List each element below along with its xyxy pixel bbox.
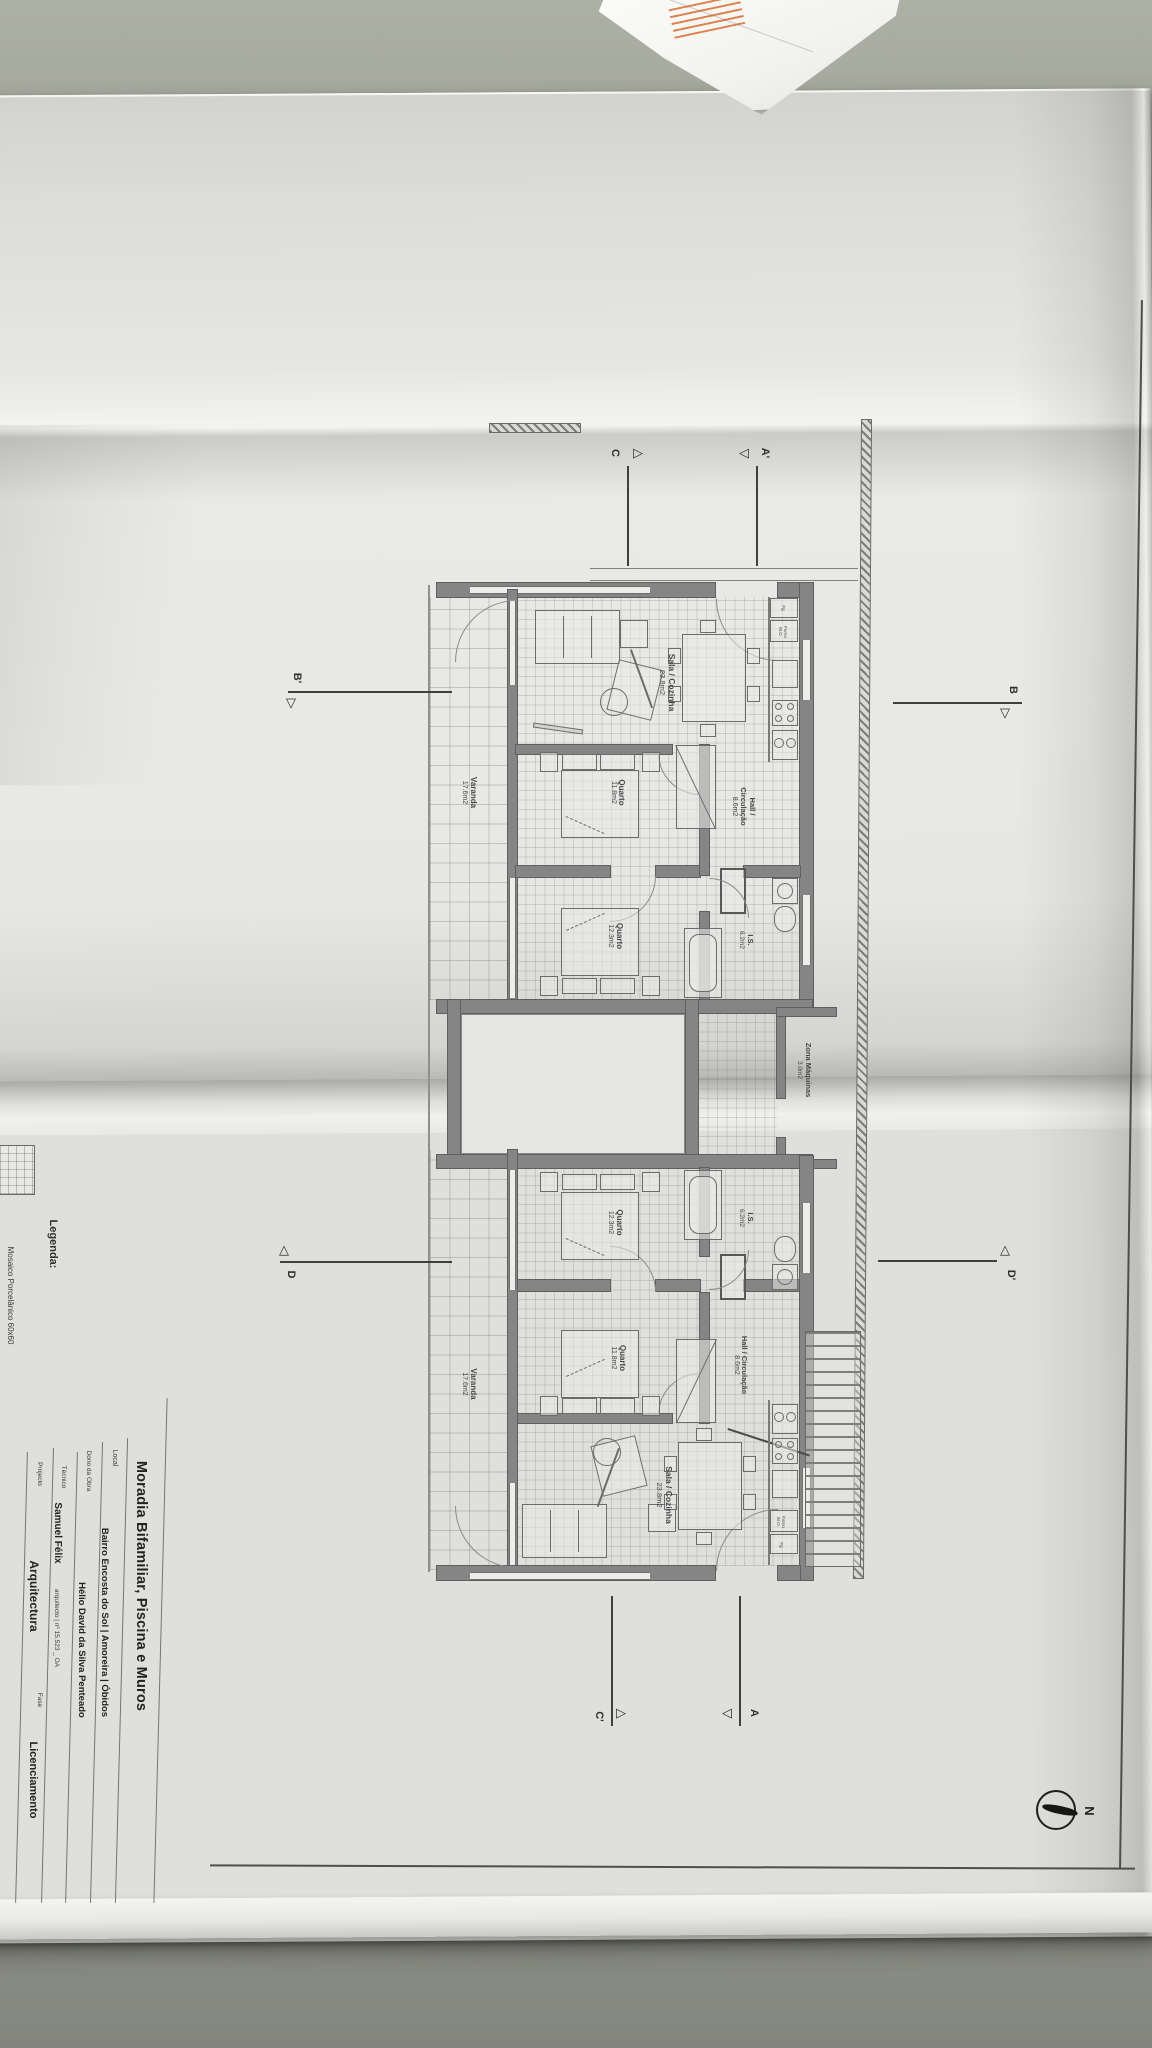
sofa xyxy=(535,610,620,664)
titleblock-owner-label: Dono da Obra xyxy=(84,1450,93,1492)
bathtub-inner xyxy=(689,934,717,992)
site-boundary-wall xyxy=(490,424,580,432)
chair xyxy=(747,686,760,702)
section-line-a xyxy=(739,1596,741,1726)
label-text: Mosaico Porcelânico 60x60 xyxy=(5,1247,14,1345)
room-area: 6.2m2 xyxy=(738,931,745,949)
pillow xyxy=(600,1398,635,1414)
wall xyxy=(437,1000,812,1013)
chair xyxy=(747,648,760,664)
room-area: 6.2m2 xyxy=(738,1209,745,1227)
section-marker-d-prime: D' xyxy=(1002,1264,1020,1286)
wall xyxy=(437,1155,812,1168)
chair xyxy=(696,1532,712,1545)
room-area: 17.6m2 xyxy=(460,1372,468,1395)
room-name: Quarto xyxy=(617,779,626,805)
room-name: Varanda xyxy=(468,777,477,808)
label-text: Arquitectura xyxy=(27,1560,41,1631)
room-label-varanda-lower: Varanda 17.6m2 xyxy=(458,1358,480,1410)
label-text: Bairro Encosta do Sol | Amoreira | Óbido… xyxy=(99,1528,110,1717)
room-label-sala-lower: Sala / Cozinha 23.8m2 xyxy=(652,1455,676,1535)
titleblock-local-value: Bairro Encosta do Sol | Amoreira | Óbido… xyxy=(96,1520,112,1725)
titleblock-phase-value: Licenciamento xyxy=(25,1732,40,1828)
room-name: Sala / Cozinha xyxy=(663,1466,673,1524)
label-text: N xyxy=(1082,1806,1097,1815)
label-text: Dono da Obra xyxy=(85,1451,92,1492)
label-text: Samuel Félix xyxy=(52,1502,64,1563)
label-text: arquitecto | nº 15.523 _ OA xyxy=(53,1589,60,1667)
sink-bowl xyxy=(774,738,784,748)
chair xyxy=(700,724,716,737)
chair xyxy=(743,1494,756,1510)
label-text: Hélio David da Silva Penteado xyxy=(76,1582,87,1718)
window xyxy=(470,586,650,594)
section-marker-c-prime: C' xyxy=(591,1703,607,1730)
label-text: Fase xyxy=(36,1693,43,1707)
bed xyxy=(561,1192,639,1260)
chair xyxy=(700,620,716,633)
section-marker-b-prime: B' xyxy=(288,668,305,688)
section-triangle-icon: ▷ xyxy=(633,446,643,459)
room-label-zona-maquinas: Zona Máquinas 3.0m2 xyxy=(794,1035,814,1105)
room-area: 11.8m2 xyxy=(609,1347,617,1370)
sofa-cushion-line xyxy=(578,1510,579,1552)
marker-label: D' xyxy=(1005,1270,1018,1281)
room-label-varanda-upper: Varanda 17.6m2 xyxy=(458,770,480,815)
chair xyxy=(696,1428,712,1441)
room-name: Hall / Circulação xyxy=(740,1336,749,1394)
marker-label: D xyxy=(284,1271,297,1279)
wall xyxy=(778,583,800,597)
room-area: 12.3m2 xyxy=(606,924,614,947)
pool-wall xyxy=(686,1000,698,1168)
room-name: Quarto xyxy=(614,923,623,949)
room-label-quarto1-upper: Quarto 11.8m2 xyxy=(605,770,630,815)
room-label-sala-upper: Sala / Cozinha 23.8m2 xyxy=(655,643,678,722)
window xyxy=(802,1203,811,1273)
kitchen-label-oven: Forno M.O. xyxy=(770,621,796,643)
room-name: Zona Máquinas xyxy=(803,1043,812,1098)
label-text: Local xyxy=(109,1450,117,1467)
room-name: Quarto xyxy=(614,1209,623,1235)
room-name: Sala / Cozinha xyxy=(666,654,676,712)
label-text: Legenda: xyxy=(47,1220,60,1269)
titleblock-title: Moradia Bifamiliar, Piscina e Muros xyxy=(127,1452,155,1720)
room-label-quarto1-lower: Quarto 11.8m2 xyxy=(606,1333,630,1383)
wall xyxy=(516,866,610,877)
kitchen-label-oven: Forno M.O. xyxy=(768,1511,794,1533)
section-triangle-icon: ▷ xyxy=(616,1706,626,1719)
marker-label: C' xyxy=(593,1711,606,1722)
window xyxy=(470,1572,650,1580)
wall xyxy=(744,866,800,877)
marker-label: B' xyxy=(290,673,303,684)
titleblock-technician-suffix: arquitecto | nº 15.523 _ OA xyxy=(51,1572,62,1684)
room-label-is-upper: I.S. 6.2m2 xyxy=(737,925,755,955)
section-line-b xyxy=(893,702,1022,704)
wall xyxy=(777,1008,836,1016)
room-label-quarto2-upper: Quarto 12.3m2 xyxy=(603,913,627,959)
kitchen-label-fg: Fg xyxy=(768,1535,794,1555)
window xyxy=(802,895,811,965)
marker-label: C xyxy=(609,449,622,457)
bathtub-inner xyxy=(689,1176,717,1234)
pillow xyxy=(600,754,635,770)
titleblock-project-label: Projecto xyxy=(35,1455,44,1493)
kitchen-module xyxy=(772,660,798,688)
section-triangle-icon: ◁ xyxy=(722,1706,732,1719)
round-table xyxy=(600,688,628,716)
nightstand xyxy=(540,1396,558,1416)
section-triangle-icon: ▽ xyxy=(1000,706,1010,719)
bed xyxy=(561,908,639,976)
section-line-a-prime xyxy=(756,466,758,566)
label-text: Forno M.O. xyxy=(776,1511,786,1533)
sink-bowl xyxy=(774,1412,784,1422)
stairs xyxy=(806,1332,860,1566)
label-text: Licenciamento xyxy=(26,1741,39,1818)
room-area: 8.6m2 xyxy=(730,797,738,816)
burner xyxy=(787,715,794,722)
section-triangle-icon: △ xyxy=(1000,1243,1010,1256)
section-triangle-icon: ▽ xyxy=(286,696,296,709)
legend-swatch xyxy=(0,1146,34,1194)
room-label-hall-lower: Hall / Circulação 8.6m2 xyxy=(726,1330,754,1400)
washbasin-bowl xyxy=(777,1269,793,1285)
north-label: N xyxy=(1080,1798,1098,1824)
label-text: Fg xyxy=(778,1542,783,1547)
passage-floor-grid xyxy=(698,1012,777,1156)
pillow xyxy=(562,1174,597,1190)
section-marker-c: C xyxy=(608,444,622,462)
pillow xyxy=(562,754,597,770)
titleblock-project-value: Arquitectura xyxy=(25,1548,42,1644)
toilet xyxy=(774,1236,796,1262)
section-marker-d: D xyxy=(283,1266,298,1283)
room-name: Hall / Circulação xyxy=(738,778,755,835)
pillow xyxy=(600,1174,635,1190)
label-text: Projecto xyxy=(36,1462,43,1486)
toilet xyxy=(774,906,796,932)
pool-wall xyxy=(448,1000,460,1168)
fold-shadow-left xyxy=(0,423,409,786)
dining-table xyxy=(678,1442,742,1530)
pillow xyxy=(562,978,597,994)
terrace-edge xyxy=(428,585,430,1572)
sofa-cushion-line xyxy=(591,616,592,658)
nightstand xyxy=(540,752,558,772)
nightstand xyxy=(642,1172,660,1192)
nightstand xyxy=(540,976,558,996)
section-triangle-icon: △ xyxy=(279,1243,289,1256)
room-label-is-lower: I.S. 6.2m2 xyxy=(737,1203,755,1233)
sheet-bottom-edge xyxy=(0,1892,1152,1939)
label-text: Fg xyxy=(780,605,785,610)
sink-bowl xyxy=(786,1412,796,1422)
room-name: I.S. xyxy=(745,1212,754,1223)
pillow xyxy=(600,978,635,994)
washbasin-bowl xyxy=(777,883,793,899)
sofa-cushion-line xyxy=(550,1510,551,1552)
section-line-d-prime xyxy=(878,1260,997,1262)
window xyxy=(802,640,811,700)
kitchen-label-fg: Fg xyxy=(770,598,796,618)
burner xyxy=(787,1441,794,1448)
titleblock-technician-label: Técnico xyxy=(59,1462,68,1492)
room-area: 23.8m2 xyxy=(655,1482,664,1507)
label-text: Técnico xyxy=(60,1466,67,1489)
section-line-c-prime xyxy=(611,1596,613,1726)
pillow xyxy=(562,1398,597,1414)
titleblock-local-label: Local xyxy=(109,1446,118,1470)
wall xyxy=(777,1008,785,1098)
window xyxy=(509,878,516,998)
section-marker-b: B xyxy=(1005,682,1020,698)
marker-label: A' xyxy=(759,448,772,459)
marker-label: A xyxy=(748,1709,761,1717)
wall xyxy=(656,866,700,877)
nightstand xyxy=(642,1396,660,1416)
section-line-b-prime xyxy=(288,691,452,693)
room-name: Quarto xyxy=(617,1345,626,1371)
room-name: Varanda xyxy=(468,1368,477,1399)
room-label-hall-upper: Hall / Circulação 8.6m2 xyxy=(729,778,757,835)
pool-patio xyxy=(460,1013,686,1155)
sofa xyxy=(522,1504,607,1558)
section-line-c xyxy=(627,466,629,566)
wall xyxy=(516,1280,610,1291)
dining-table xyxy=(682,634,746,722)
nightstand xyxy=(642,976,660,996)
room-area: 3.0m2 xyxy=(796,1061,803,1079)
walkway-line xyxy=(590,580,858,581)
room-area: 23.8m2 xyxy=(657,670,666,695)
burner xyxy=(787,703,794,710)
envelope-print-icon xyxy=(669,0,746,39)
room-area: 17.6m2 xyxy=(460,781,468,804)
wall xyxy=(778,1566,800,1580)
section-marker-a-prime: A' xyxy=(758,444,772,462)
fold-panel-top xyxy=(0,88,1152,439)
wall xyxy=(656,1280,700,1291)
window xyxy=(509,1170,516,1290)
side-table xyxy=(620,620,648,648)
label-text: Moradia Bifamiliar, Piscina e Muros xyxy=(133,1461,150,1711)
titleblock-technician-name: Samuel Félix xyxy=(50,1498,65,1568)
marker-label: B xyxy=(1006,686,1019,694)
room-label-quarto2-lower: Quarto 12.3m2 xyxy=(603,1198,627,1247)
legend-heading: Legenda: xyxy=(44,1208,62,1280)
room-area: 11.8m2 xyxy=(609,781,617,804)
burner xyxy=(775,1441,782,1448)
sofa-cushion-line xyxy=(563,616,564,658)
label-text: Forno M.O. xyxy=(778,621,788,643)
section-marker-a: A xyxy=(746,1705,762,1721)
burner xyxy=(775,715,782,722)
room-area: 8.6m2 xyxy=(732,1355,740,1374)
titleblock-owner-value: Hélio David da Silva Penteado xyxy=(73,1570,89,1730)
titleblock-phase-label: Fase xyxy=(35,1688,44,1712)
chair xyxy=(743,1456,756,1472)
section-line-d xyxy=(280,1261,452,1263)
burner xyxy=(787,1453,794,1460)
sink-bowl xyxy=(786,738,796,748)
legend-item: Mosaico Porcelânico 60x60 xyxy=(4,1198,16,1393)
section-triangle-icon: ◁ xyxy=(739,446,749,459)
walkway-line xyxy=(590,568,858,569)
burner xyxy=(775,703,782,710)
room-name: I.S. xyxy=(745,934,754,945)
nightstand xyxy=(540,1172,558,1192)
kitchen-module xyxy=(772,1470,798,1498)
room-area: 12.3m2 xyxy=(606,1211,614,1234)
burner xyxy=(775,1453,782,1460)
desk-photo-scene: Sala / Cozinha 23.8m2 Hall / Circulação … xyxy=(0,0,1152,2048)
nightstand xyxy=(642,752,660,772)
